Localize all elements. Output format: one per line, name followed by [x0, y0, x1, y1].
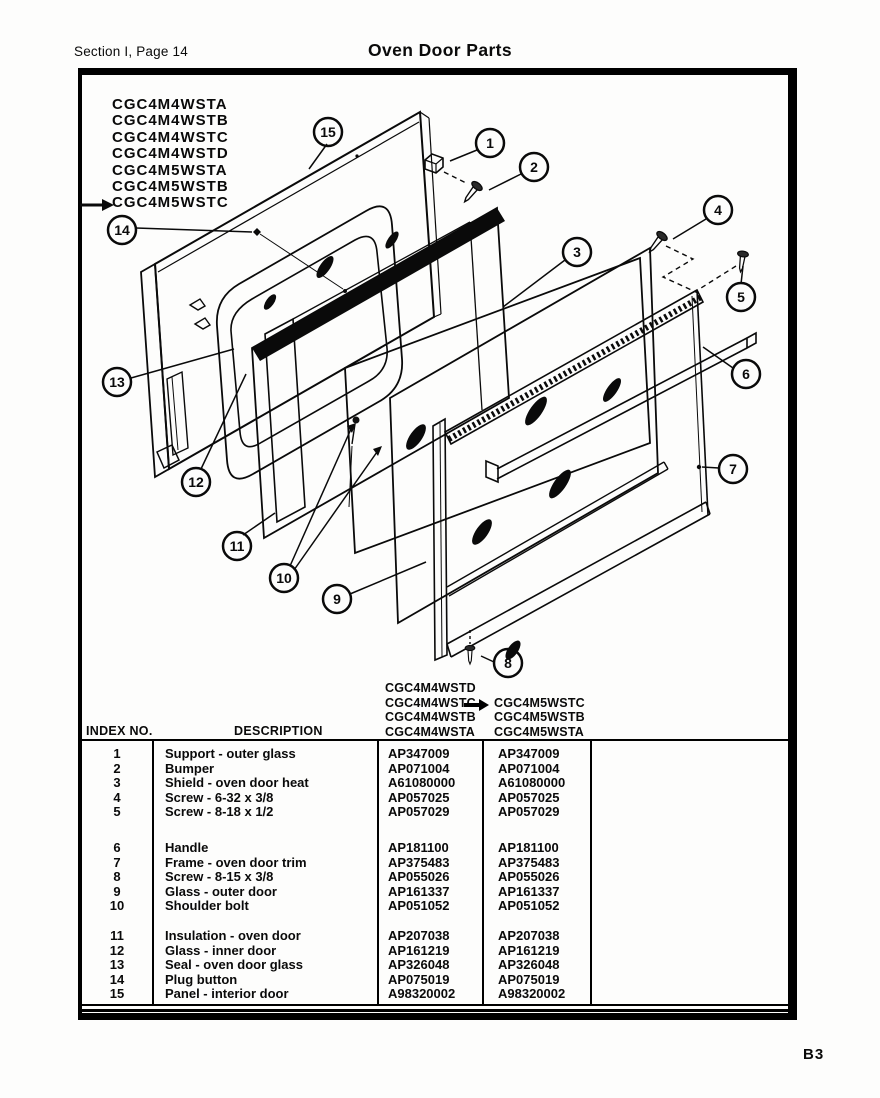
svg-text:12: 12 [188, 474, 204, 490]
table-row: 14Plug buttonAP075019AP075019 [84, 972, 788, 987]
callout-12: 12 [182, 468, 210, 496]
row-part-number-2: AP051052 [498, 898, 559, 913]
parts-table-group-1: 1Support - outer glassAP347009AP3470092B… [84, 746, 788, 819]
row-index: 9 [84, 884, 150, 899]
row-description: Frame - oven door trim [165, 855, 307, 870]
svg-text:14: 14 [114, 222, 130, 238]
model-equivalence-arrow-icon [464, 699, 492, 711]
svg-text:11: 11 [230, 538, 245, 554]
svg-text:13: 13 [109, 374, 125, 390]
row-part-number-1: A98320002 [388, 986, 455, 1001]
row-description: Support - outer glass [165, 746, 296, 761]
index-col-header: INDEX NO. [86, 724, 153, 738]
callout-15: 15 [314, 118, 342, 146]
row-index: 8 [84, 869, 150, 884]
row-index: 11 [84, 928, 150, 943]
svg-text:7: 7 [729, 461, 737, 477]
model-header-item: CGC4M5WSTA [494, 725, 585, 740]
row-index: 14 [84, 972, 150, 987]
row-part-number-1: AP071004 [388, 761, 449, 776]
row-part-number-2: AP375483 [498, 855, 559, 870]
svg-text:6: 6 [742, 366, 750, 382]
row-index: 12 [84, 943, 150, 958]
model-list: CGC4M4WSTACGC4M4WSTBCGC4M4WSTCCGC4M4WSTD… [112, 97, 229, 212]
row-part-number-2: A61080000 [498, 775, 565, 790]
row-part-number-2: AP075019 [498, 972, 559, 987]
row-part-number-2: A98320002 [498, 986, 565, 1001]
row-index: 15 [84, 986, 150, 1001]
model-header-item: CGC4M5WSTB [494, 710, 585, 725]
model-list-arrow-icon [80, 199, 114, 211]
table-row: 3Shield - oven door heatA61080000A610800… [84, 775, 788, 790]
row-description: Handle [165, 840, 208, 855]
table-row: 10Shoulder boltAP051052AP051052 [84, 898, 788, 913]
callout-1: 1 [476, 129, 504, 157]
oven-door-insulation [265, 222, 482, 522]
svg-text:5: 5 [737, 289, 745, 305]
row-index: 10 [84, 898, 150, 913]
model-list-item: CGC4M5WSTA [112, 163, 229, 179]
row-description: Glass - inner door [165, 943, 276, 958]
callout-6: 6 [732, 360, 760, 388]
manual-page: Section I, Page 14 Oven Door Parts [0, 0, 880, 1098]
svg-text:1: 1 [486, 135, 494, 151]
model-list-item: CGC4M4WSTD [112, 146, 229, 162]
model-list-item: CGC4M5WSTB [112, 179, 229, 195]
row-part-number-2: AP207038 [498, 928, 559, 943]
row-index: 5 [84, 804, 150, 819]
table-row: 7Frame - oven door trimAP375483AP375483 [84, 855, 788, 870]
model-list-item: CGC4M4WSTB [112, 113, 229, 129]
row-index: 7 [84, 855, 150, 870]
door-glass-seal [217, 206, 402, 478]
row-index: 6 [84, 840, 150, 855]
svg-text:9: 9 [333, 591, 341, 607]
callout-9: 9 [323, 585, 351, 613]
table-bottom-rule-2 [82, 1009, 788, 1012]
table-row: 9Glass - outer doorAP161337AP161337 [84, 884, 788, 899]
row-part-number-1: AP347009 [388, 746, 449, 761]
row-description: Shoulder bolt [165, 898, 249, 913]
callout-3: 3 [563, 238, 591, 266]
callout-10: 10 [270, 564, 298, 592]
row-part-number-2: AP347009 [498, 746, 559, 761]
table-top-rule [82, 739, 788, 741]
model-column-2-header: CGC4M5WSTCCGC4M5WSTBCGC4M5WSTA [494, 696, 585, 740]
table-row: 15Panel - interior doorA98320002A9832000… [84, 986, 788, 1001]
row-part-number-1: AP057025 [388, 790, 449, 805]
model-header-item: CGC4M4WSTB [385, 710, 476, 725]
row-part-number-2: AP161219 [498, 943, 559, 958]
table-row: 8Screw - 8-15 x 3/8AP055026AP055026 [84, 869, 788, 884]
callout-7: 7 [719, 455, 747, 483]
row-description: Insulation - oven door [165, 928, 301, 943]
row-index: 3 [84, 775, 150, 790]
svg-text:2: 2 [530, 159, 538, 175]
row-part-number-1: AP326048 [388, 957, 449, 972]
callout-13: 13 [103, 368, 131, 396]
row-part-number-1: AP075019 [388, 972, 449, 987]
description-col-header: DESCRIPTION [234, 724, 323, 738]
svg-text:4: 4 [714, 202, 722, 218]
support-clip [425, 154, 443, 173]
row-part-number-1: AP051052 [388, 898, 449, 913]
callout-2: 2 [520, 153, 548, 181]
row-description: Shield - oven door heat [165, 775, 309, 790]
model-header-item: CGC4M5WSTC [494, 696, 585, 711]
page-code: B3 [803, 1046, 824, 1063]
row-description: Screw - 6-32 x 3/8 [165, 790, 273, 805]
inner-door-glass [252, 208, 509, 538]
row-description: Plug button [165, 972, 237, 987]
model-list-item: CGC4M4WSTC [112, 130, 229, 146]
table-row: 13Seal - oven door glassAP326048AP326048 [84, 957, 788, 972]
row-index: 1 [84, 746, 150, 761]
row-description: Bumper [165, 761, 214, 776]
row-part-number-1: AP161337 [388, 884, 449, 899]
parts-table-group-3: 11Insulation - oven doorAP207038AP207038… [84, 928, 788, 1001]
model-header-item: CGC4M4WSTD [385, 681, 476, 696]
row-part-number-1: AP207038 [388, 928, 449, 943]
svg-text:8: 8 [504, 655, 512, 671]
table-row: 5Screw - 8-18 x 1/2AP057029AP057029 [84, 804, 788, 819]
table-row: 11Insulation - oven doorAP207038AP207038 [84, 928, 788, 943]
outer-door-glass [390, 248, 658, 623]
row-description: Screw - 8-15 x 3/8 [165, 869, 273, 884]
table-row: 2BumperAP071004AP071004 [84, 761, 788, 776]
row-description: Seal - oven door glass [165, 957, 303, 972]
svg-text:3: 3 [573, 244, 581, 260]
table-row: 12Glass - inner doorAP161219AP161219 [84, 943, 788, 958]
svg-text:10: 10 [276, 570, 292, 586]
row-description: Glass - outer door [165, 884, 277, 899]
row-index: 4 [84, 790, 150, 805]
model-column-1-header: CGC4M4WSTDCGC4M4WSTCCGC4M4WSTBCGC4M4WSTA [385, 681, 476, 739]
row-part-number-1: AP057029 [388, 804, 449, 819]
svg-text:15: 15 [320, 124, 336, 140]
row-part-number-2: AP161337 [498, 884, 559, 899]
callout-4: 4 [704, 196, 732, 224]
door-trim-frame [433, 290, 710, 660]
callout-14: 14 [108, 216, 136, 244]
model-list-item: CGC4M4WSTA [112, 97, 229, 113]
callout-5: 5 [727, 283, 755, 311]
table-bottom-rule-1 [82, 1004, 788, 1006]
row-index: 2 [84, 761, 150, 776]
row-part-number-1: AP055026 [388, 869, 449, 884]
row-part-number-1: AP161219 [388, 943, 449, 958]
row-part-number-1: AP181100 [388, 840, 449, 855]
row-part-number-1: A61080000 [388, 775, 455, 790]
table-row: 4Screw - 6-32 x 3/8AP057025AP057025 [84, 790, 788, 805]
model-header-item: CGC4M4WSTA [385, 725, 476, 740]
callout-11: 11 [223, 532, 251, 560]
model-header-item: CGC4M4WSTC [385, 696, 476, 711]
row-index: 13 [84, 957, 150, 972]
table-row: 1Support - outer glassAP347009AP347009 [84, 746, 788, 761]
row-description: Screw - 8-18 x 1/2 [165, 804, 273, 819]
row-part-number-1: AP375483 [388, 855, 449, 870]
row-part-number-2: AP055026 [498, 869, 559, 884]
row-part-number-2: AP181100 [498, 840, 559, 855]
parts-table-group-2: 6HandleAP181100AP1811007Frame - oven doo… [84, 840, 788, 913]
row-part-number-2: AP071004 [498, 761, 559, 776]
table-row: 6HandleAP181100AP181100 [84, 840, 788, 855]
row-part-number-2: AP326048 [498, 957, 559, 972]
row-description: Panel - interior door [165, 986, 289, 1001]
row-part-number-2: AP057029 [498, 804, 559, 819]
row-part-number-2: AP057025 [498, 790, 559, 805]
model-list-item: CGC4M5WSTC [112, 195, 229, 211]
